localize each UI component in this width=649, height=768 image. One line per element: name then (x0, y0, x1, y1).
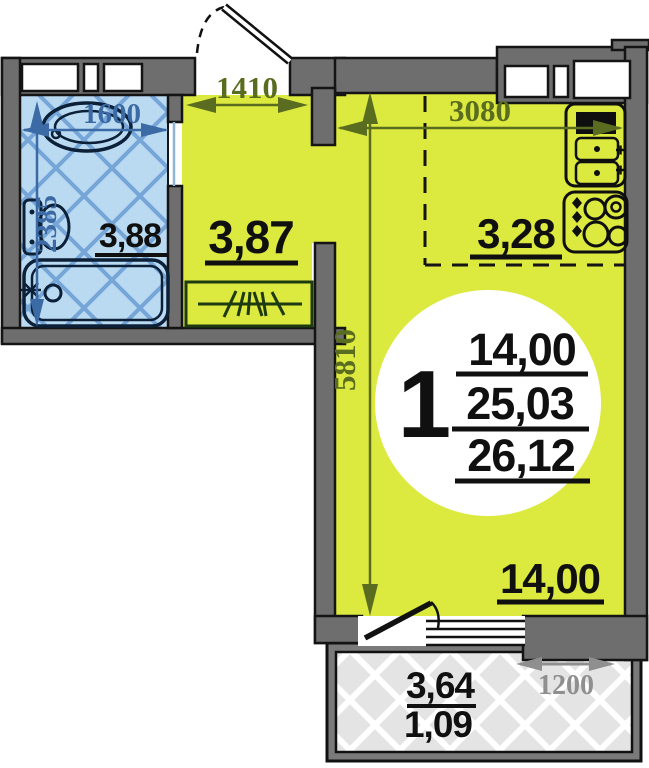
unit-total-area: 25,03 (466, 378, 574, 429)
wall-left (2, 58, 20, 343)
wall-room-bottom-left (315, 616, 362, 643)
dim-room-length-label: 5810 (327, 329, 362, 391)
bathroom-area-label: 3,88 (99, 217, 161, 255)
living-room-area-label: 14,00 (500, 555, 600, 602)
wall-room-bottom-right (523, 616, 647, 660)
balcony-window-icon (426, 616, 525, 646)
floor-plan-page: 1410 3080 5810 1600 2385 1200 3,88 (0, 0, 649, 768)
dim-kitchen-width-label: 3080 (449, 93, 511, 128)
dim-bathroom-depth-label: 2385 (31, 195, 63, 253)
hall-area-label: 3,87 (208, 211, 294, 263)
unit-rooms-count: 1 (398, 351, 450, 458)
balcony-area-label: 3,64 (406, 665, 475, 706)
wall-top-kitchen (335, 58, 497, 93)
shaft-icon (574, 61, 630, 98)
wall-right (625, 47, 647, 660)
wall-bath-hall-stub (168, 95, 182, 122)
shaft-icon (505, 66, 548, 97)
floor-plan: 1410 3080 5810 1600 2385 1200 3,88 (0, 0, 649, 768)
wall-hall-bottom (2, 328, 345, 344)
unit-total-with-balcony: 26,12 (467, 430, 575, 481)
dim-bathroom-width-label: 1600 (83, 98, 141, 130)
wall-bath-hall (168, 186, 182, 328)
dim-entry-width-label: 1410 (216, 70, 278, 105)
balcony-reduced-area-label: 1,09 (404, 704, 472, 745)
balcony-floor (336, 652, 632, 752)
shaft-icon (22, 64, 78, 91)
wall-hall-kitchen-stub (312, 88, 335, 145)
dim-balcony-width-label: 1200 (538, 670, 594, 701)
hall-room-opening (312, 145, 335, 243)
unit-living-area: 14,00 (468, 324, 576, 375)
kitchen-area-label: 3,28 (477, 210, 555, 257)
shaft-icon (104, 64, 142, 91)
shaft-icon (84, 64, 98, 91)
shaft-icon (554, 66, 568, 97)
wall-room-left (315, 243, 335, 643)
